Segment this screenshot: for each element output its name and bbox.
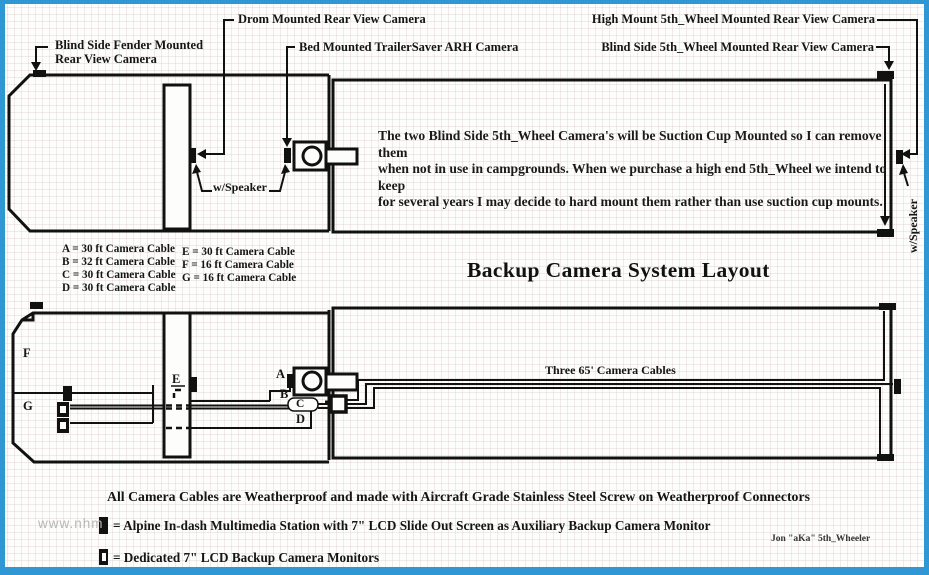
frame-right [924,0,929,575]
blind-side-marker-2 [894,379,901,394]
alpine-station-icon [63,386,72,401]
dedicated-key-text: = Dedicated 7" LCD Backup Camera Monitor… [113,550,379,566]
cable-letter-e: E [172,372,180,387]
screw-on-connector [331,396,346,412]
callout-high-mount: High Mount 5th_Wheel Mounted Rear View C… [592,13,875,27]
trailersaver-camera-icon-top [294,142,357,170]
callout-drom: Drom Mounted Rear View Camera [238,13,426,27]
cable-letter-g: G [23,399,33,414]
diagram-canvas: Drom Mounted Rear View Camera Bed Mounte… [0,0,929,575]
bed-camera-marker [284,148,291,163]
callout-bed: Bed Mounted TrailerSaver ARH Camera [299,41,518,55]
legend-row: F = 16 ft Camera Cable [182,259,296,272]
three-cables-label: Three 65' Camera Cables [545,363,676,378]
a-camera-marker [287,374,294,388]
w-speaker-label: w/Speaker [213,181,267,195]
cable-letter-f: F [23,346,31,361]
callout-blind-side: Blind Side 5th_Wheel Mounted Rear View C… [601,41,874,55]
legend-row: B = 32 ft Camera Cable [62,256,176,269]
cable-letter-d: D [296,412,305,427]
high-mount-marker-2 [879,303,896,310]
cable-letter-a: A [276,367,285,382]
watermark: www.nhm [38,516,104,531]
page-title: Backup Camera System Layout [467,258,770,283]
suction-cup-note: The two Blind Side 5th_Wheel Camera's wi… [378,128,893,211]
cable-legend-col2: E = 30 ft Camera Cable F = 16 ft Camera … [182,246,296,285]
trailer-cables [318,311,893,454]
frame-left [0,0,5,575]
cable-letter-c: C [296,398,304,410]
cable-legend-col1: A = 30 ft Camera Cable B = 32 ft Camera … [62,243,176,295]
cable-letter-b: B [280,387,288,402]
legend-row: A = 30 ft Camera Cable [62,243,176,256]
legend-row: G = 16 ft Camera Cable [182,272,296,285]
rear-marker-2 [877,454,894,461]
legend-row: C = 30 ft Camera Cable [62,269,176,282]
signature: Jon "aKa" 5th_Wheeler [771,534,870,544]
fender-camera-marker-2 [30,302,43,309]
weatherproof-note: All Camera Cables are Weatherproof and m… [107,489,810,505]
high-mount-camera-marker [877,71,894,79]
legend-row: D = 30 ft Camera Cable [62,282,176,295]
trailersaver-camera-icon-bottom [294,368,357,395]
blind-side-5th-camera-marker [896,150,903,164]
callout-fender: Blind Side Fender Mounted Rear View Came… [55,39,203,66]
frame-bottom [0,567,929,575]
frame-top [0,0,929,4]
legend-row: E = 30 ft Camera Cable [182,246,296,259]
e-camera-marker [190,377,197,392]
fender-camera-marker [33,70,46,77]
drom-camera-marker [189,148,196,163]
rear-camera-marker [877,229,894,237]
alpine-key-text: = Alpine In-dash Multimedia Station with… [113,518,710,534]
w-speaker-label-right: w/Speaker [906,199,921,253]
markers-bottom [30,302,901,461]
